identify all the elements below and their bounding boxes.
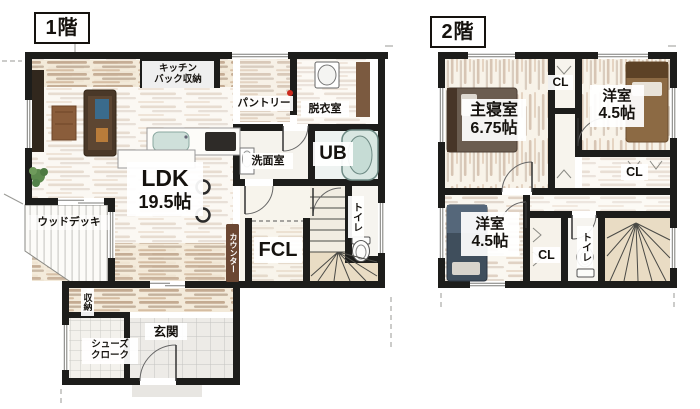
room-label-entrance: 玄関: [145, 323, 187, 340]
entrance-porch: [132, 385, 202, 397]
room-label-washroom: 洗面室: [243, 153, 293, 169]
room-label-counter: カウンター: [226, 224, 239, 282]
room-label-kitchen-back-storage: キッチン バック収納: [142, 61, 214, 88]
bedroom2-size: 4.5帖: [471, 233, 508, 250]
blue-cushion: [95, 99, 109, 119]
red-dot-marker: [287, 90, 293, 96]
room-label-bedroom2: 洋室 4.5帖: [461, 212, 519, 256]
room-label-bath: UB: [313, 142, 353, 166]
bedroom2-name: 洋室: [476, 217, 505, 233]
room-label-dressing: 脱衣室: [301, 101, 349, 117]
basket: [96, 128, 108, 142]
floorplan-canvas: 1階 キッチン バック収納 パントリー 脱衣室 洗面室 UB LDK 19.5帖…: [0, 0, 700, 409]
ldk-name: LDK: [141, 166, 188, 192]
room-label-wood-deck: ウッドデッキ: [28, 215, 110, 230]
bedroom1-size: 4.5帖: [598, 105, 635, 122]
toilet-icon: [577, 269, 594, 277]
room-label-closet3: CL: [533, 247, 560, 263]
room-label-storage: 収納: [81, 288, 94, 316]
room-label-shoe-closet: シューズ クローク: [82, 338, 138, 364]
ldk-size: 19.5帖: [138, 192, 191, 212]
room-label-toilet-2f: トイレ: [577, 226, 593, 268]
tv-board: [32, 70, 44, 152]
bedroom1-name: 洋室: [603, 89, 632, 105]
room-label-pantry: パントリー: [235, 96, 293, 111]
master-name: 主寝室: [470, 102, 518, 120]
floor1-title: 1階: [34, 12, 90, 44]
floor2-title: 2階: [430, 16, 486, 48]
room-label-fcl: FCL: [254, 237, 302, 263]
room-label-ldk: LDK 19.5帖: [127, 162, 203, 216]
room-label-master: 主寝室 6.75帖: [462, 99, 526, 141]
stove: [205, 132, 236, 151]
master-size: 6.75帖: [470, 120, 517, 138]
room-label-toilet-1f: トイレ: [348, 196, 364, 238]
room-label-closet1: CL: [548, 75, 573, 90]
room-label-closet2: CL: [621, 164, 648, 180]
dressing-room-cabinet: [356, 62, 370, 117]
room-label-bedroom1: 洋室 4.5帖: [590, 85, 644, 127]
kitchen-sink: [153, 132, 189, 151]
low-table: [52, 106, 76, 140]
pillow: [452, 262, 480, 275]
